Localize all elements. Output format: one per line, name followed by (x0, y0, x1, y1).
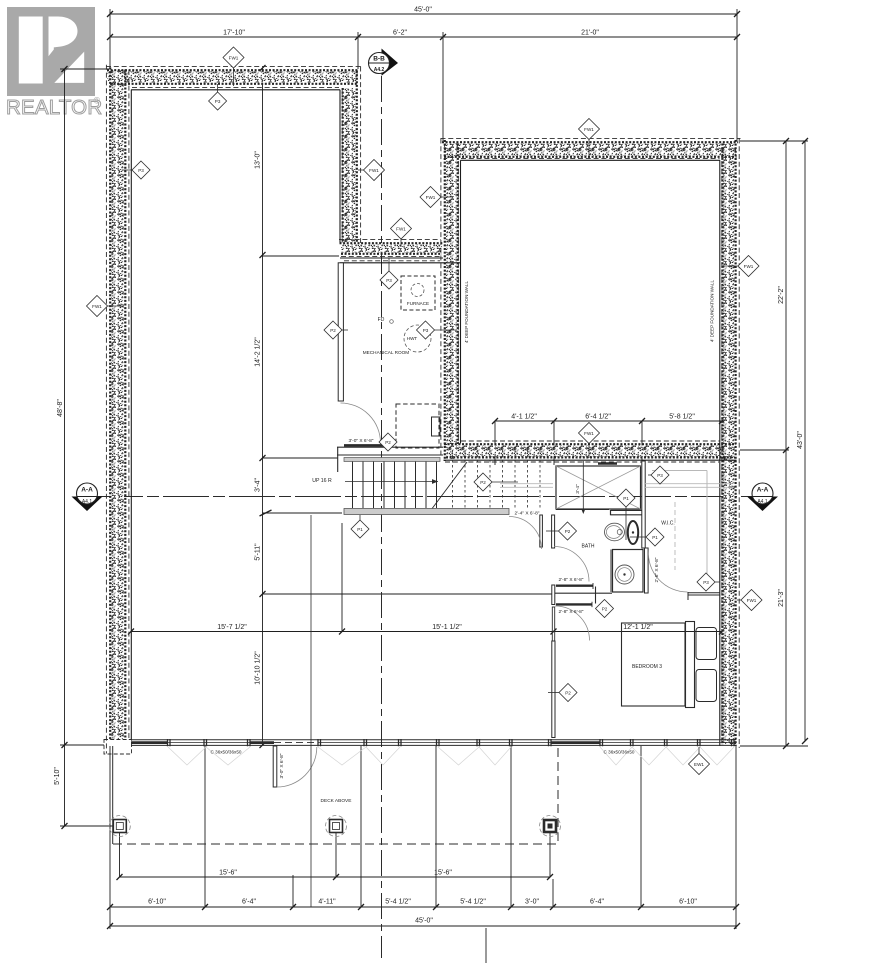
svg-text:P2: P2 (602, 606, 608, 611)
svg-text:5'-8 1/2": 5'-8 1/2" (669, 414, 695, 421)
svg-text:4'-1 1/2": 4'-1 1/2" (511, 414, 537, 421)
svg-text:FD: FD (378, 317, 385, 323)
svg-text:C 36x50/36x50: C 36x50/36x50 (604, 750, 635, 755)
svg-text:P2: P2 (385, 440, 391, 445)
svg-text:5'-10": 5'-10" (54, 767, 61, 785)
svg-text:12'-1 1/2": 12'-1 1/2" (623, 624, 653, 631)
svg-text:UP 16 R: UP 16 R (312, 478, 332, 484)
svg-text:5'-11": 5'-11" (255, 543, 262, 561)
svg-text:4' DEEP FOUNDATION WALL: 4' DEEP FOUNDATION WALL (710, 280, 715, 342)
svg-text:14'-2 1/2": 14'-2 1/2" (255, 337, 262, 367)
svg-text:FW1: FW1 (584, 431, 594, 436)
svg-text:FW1: FW1 (747, 598, 757, 603)
svg-text:13'-0": 13'-0" (255, 151, 262, 169)
svg-text:5'-4 1/2": 5'-4 1/2" (460, 899, 486, 906)
svg-text:FURNACE: FURNACE (407, 301, 429, 306)
svg-text:FW1: FW1 (744, 264, 754, 269)
svg-text:REALTOR: REALTOR (6, 96, 102, 119)
svg-text:®: ® (94, 96, 101, 106)
svg-text:DECK ABOVE: DECK ABOVE (321, 798, 352, 804)
svg-text:6'-10": 6'-10" (679, 899, 697, 906)
svg-text:6'-10": 6'-10" (148, 899, 166, 906)
svg-text:21'-3": 21'-3" (778, 589, 785, 607)
svg-text:3'-4": 3'-4" (575, 484, 581, 494)
svg-text:15'-6": 15'-6" (219, 870, 237, 877)
svg-text:43'-0": 43'-0" (797, 431, 804, 449)
svg-text:P3: P3 (423, 328, 429, 333)
svg-text:FW1: FW1 (584, 127, 594, 132)
svg-text:A-A: A-A (757, 487, 769, 494)
svg-text:6'-2": 6'-2" (393, 30, 407, 37)
svg-text:MECHANICAL ROOM: MECHANICAL ROOM (363, 350, 410, 355)
svg-text:2'-8" X 6'-8": 2'-8" X 6'-8" (559, 577, 584, 583)
svg-text:2'-8" X 6'-8": 2'-8" X 6'-8" (559, 609, 584, 615)
svg-text:P2: P2 (480, 480, 486, 485)
svg-text:P1: P1 (652, 535, 658, 540)
svg-text:EW1: EW1 (694, 762, 704, 767)
svg-text:6'-4": 6'-4" (590, 899, 604, 906)
svg-text:HWT: HWT (407, 336, 418, 341)
svg-text:5'-4 1/2": 5'-4 1/2" (385, 899, 411, 906)
svg-text:4' DEEP FOUNDATION WALL: 4' DEEP FOUNDATION WALL (464, 281, 469, 343)
svg-text:P2: P2 (330, 328, 336, 333)
svg-text:B-B: B-B (373, 56, 385, 63)
svg-text:FW1: FW1 (369, 168, 379, 173)
svg-text:A4.1: A4.1 (757, 499, 768, 505)
svg-text:W.I.C.: W.I.C. (661, 521, 675, 527)
svg-text:FW1: FW1 (426, 195, 436, 200)
svg-text:2'-4" X 6'-8": 2'-4" X 6'-8" (515, 511, 540, 517)
svg-text:P3: P3 (386, 278, 392, 283)
svg-text:C 36x50/36x50: C 36x50/36x50 (211, 750, 242, 755)
svg-text:6'-4 1/2": 6'-4 1/2" (585, 414, 611, 421)
svg-text:15'-7 1/2": 15'-7 1/2" (217, 624, 247, 631)
svg-text:P2: P2 (565, 529, 571, 534)
svg-text:48'-8": 48'-8" (57, 399, 64, 417)
svg-text:3'-4": 3'-4" (255, 478, 262, 492)
svg-text:P1: P1 (623, 496, 629, 501)
svg-text:17'-10": 17'-10" (223, 30, 245, 37)
svg-text:3'-0": 3'-0" (525, 899, 539, 906)
svg-text:4'-11": 4'-11" (318, 899, 336, 906)
svg-text:P2: P2 (565, 690, 571, 695)
svg-text:P3: P3 (215, 99, 221, 104)
svg-text:3'-0" X 6'-8": 3'-0" X 6'-8" (349, 438, 374, 444)
svg-text:2'-6" X 6'-8": 2'-6" X 6'-8" (654, 557, 660, 582)
svg-text:A4.1: A4.1 (82, 499, 93, 505)
svg-text:FW1: FW1 (396, 226, 406, 231)
svg-text:15'-6": 15'-6" (434, 870, 452, 877)
svg-text:FW1: FW1 (229, 55, 239, 60)
svg-text:45'-0": 45'-0" (415, 918, 433, 925)
svg-text:22'-2": 22'-2" (778, 286, 785, 304)
svg-text:21'-0": 21'-0" (581, 30, 599, 37)
svg-text:6'-4": 6'-4" (242, 899, 256, 906)
svg-text:P3: P3 (703, 580, 709, 585)
svg-text:P1: P1 (357, 527, 363, 532)
svg-text:FW1: FW1 (92, 304, 102, 309)
svg-text:3'-0" X 6'-8": 3'-0" X 6'-8" (279, 753, 285, 778)
svg-text:15'-1 1/2": 15'-1 1/2" (432, 624, 462, 631)
svg-text:A-A: A-A (81, 487, 93, 494)
svg-text:P3: P3 (138, 168, 144, 173)
svg-text:BEDROOM 3: BEDROOM 3 (632, 664, 662, 670)
svg-text:10'-10 1/2": 10'-10 1/2" (255, 651, 262, 685)
svg-text:P3: P3 (657, 473, 663, 478)
svg-text:A4.2: A4.2 (374, 67, 385, 73)
svg-text:45'-0": 45'-0" (414, 7, 432, 14)
svg-text:BATH: BATH (582, 544, 595, 550)
